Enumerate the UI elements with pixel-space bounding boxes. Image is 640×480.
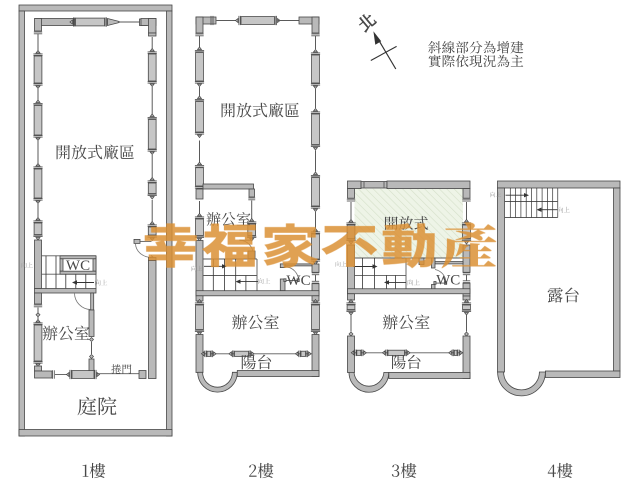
svg-text:WC: WC — [286, 273, 310, 289]
svg-text:WC: WC — [436, 273, 460, 289]
svg-text:WC: WC — [66, 258, 90, 274]
